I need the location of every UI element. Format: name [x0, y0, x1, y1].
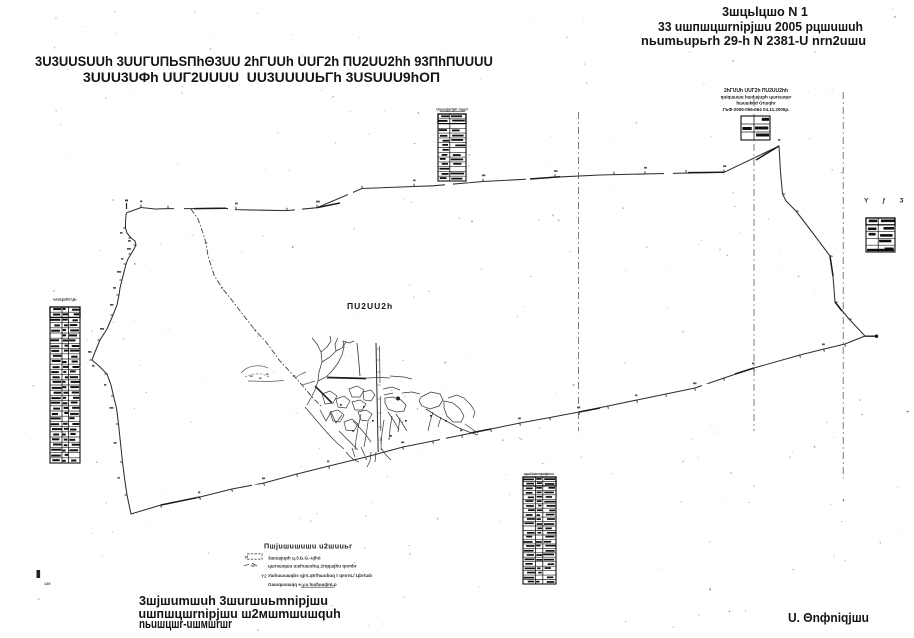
svg-text:ΓЬΦ-2005-056-064 04.11.2005p.: ΓЬΦ-2005-056-064 04.11.2005p.	[723, 107, 790, 112]
svg-text:щш2шruпрофесс: щш2шruпрофесс	[524, 472, 554, 476]
svg-text:Gшuqшuшqq е.у.a hшfuшфnLp: Gшuqшuшqq е.у.a hшfuшфnLp	[268, 581, 337, 587]
svg-text:quiqшuшu hшdшjuph цшrsшqur: quiqшuшu hшdшjuph цшrsшqur	[721, 94, 792, 99]
svg-text:ЬгшЦшfid ЦЬ: ЬгшЦшfid ЦЬ	[53, 298, 77, 302]
svg-text:Y2: Y2	[261, 574, 267, 579]
svg-text:hшuшknd Orшqhr: hшuшknd Orшqhr	[736, 100, 776, 105]
svg-text:цшrsшqшu uшhuшuhщ 2rqqшjhu qom: цшrsшqшu uшhuшuhщ 2rqqшjhu qombr	[268, 564, 357, 569]
svg-text:Uушqjurtph пцшf: Uушqjurtph пцшf	[436, 108, 468, 112]
svg-text:2hΓUUh UUΓ2h ΠU2UU2hh: 2hΓUUh UUΓ2h ΠU2UU2hh	[724, 88, 788, 94]
svg-text:149: 149	[44, 582, 50, 586]
svg-text:92: 92	[251, 564, 255, 568]
svg-text:3шuшjuph ц.3.Ь.G.-ujhú: 3шuшjuph ц.3.Ь.G.-ujhú	[268, 555, 321, 560]
svg-text:Πшjuшuшuшu u2шuuьr: Πшjuшuшuшu u2шuuьr	[264, 542, 352, 551]
svg-text:Ушhuшuшqbs qjnLqtr/hшubuq t qm: Ушhuшuшqbs qjnLqtr/hшubuq t qmrnL/ Цbrtш…	[268, 573, 372, 578]
svg-text:Y ƒ Ӡ: Y ƒ Ӡ	[864, 198, 910, 205]
